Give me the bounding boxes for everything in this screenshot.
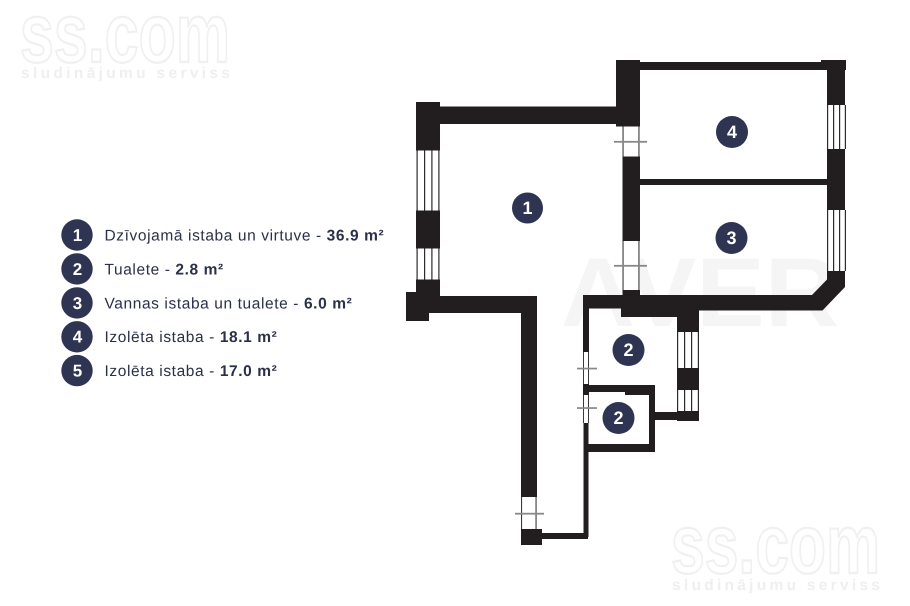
svg-text:Izolēta istaba - 17.0 m²: Izolēta istaba - 17.0 m² <box>105 363 278 380</box>
svg-text:Vannas istaba un tualete - 6.0: Vannas istaba un tualete - 6.0 m² <box>105 295 353 312</box>
svg-text:3: 3 <box>726 228 736 248</box>
svg-text:1: 1 <box>73 226 82 245</box>
svg-text:Dzīvojamā istaba un virtuve -: Dzīvojamā istaba un virtuve - 36.9 m² <box>105 227 385 244</box>
svg-text:AVER: AVER <box>561 237 839 347</box>
svg-text:1: 1 <box>522 198 532 218</box>
svg-text:Tualete - 2.8 m²: Tualete - 2.8 m² <box>105 261 224 278</box>
svg-text:2: 2 <box>613 408 623 428</box>
svg-text:5: 5 <box>73 362 82 381</box>
svg-text:4: 4 <box>73 328 83 347</box>
svg-text:4: 4 <box>727 122 737 142</box>
svg-text:2: 2 <box>623 340 633 360</box>
svg-text:3: 3 <box>73 294 82 313</box>
svg-text:2: 2 <box>73 260 82 279</box>
svg-text:Izolēta istaba - 18.1 m²: Izolēta istaba - 18.1 m² <box>105 329 278 346</box>
